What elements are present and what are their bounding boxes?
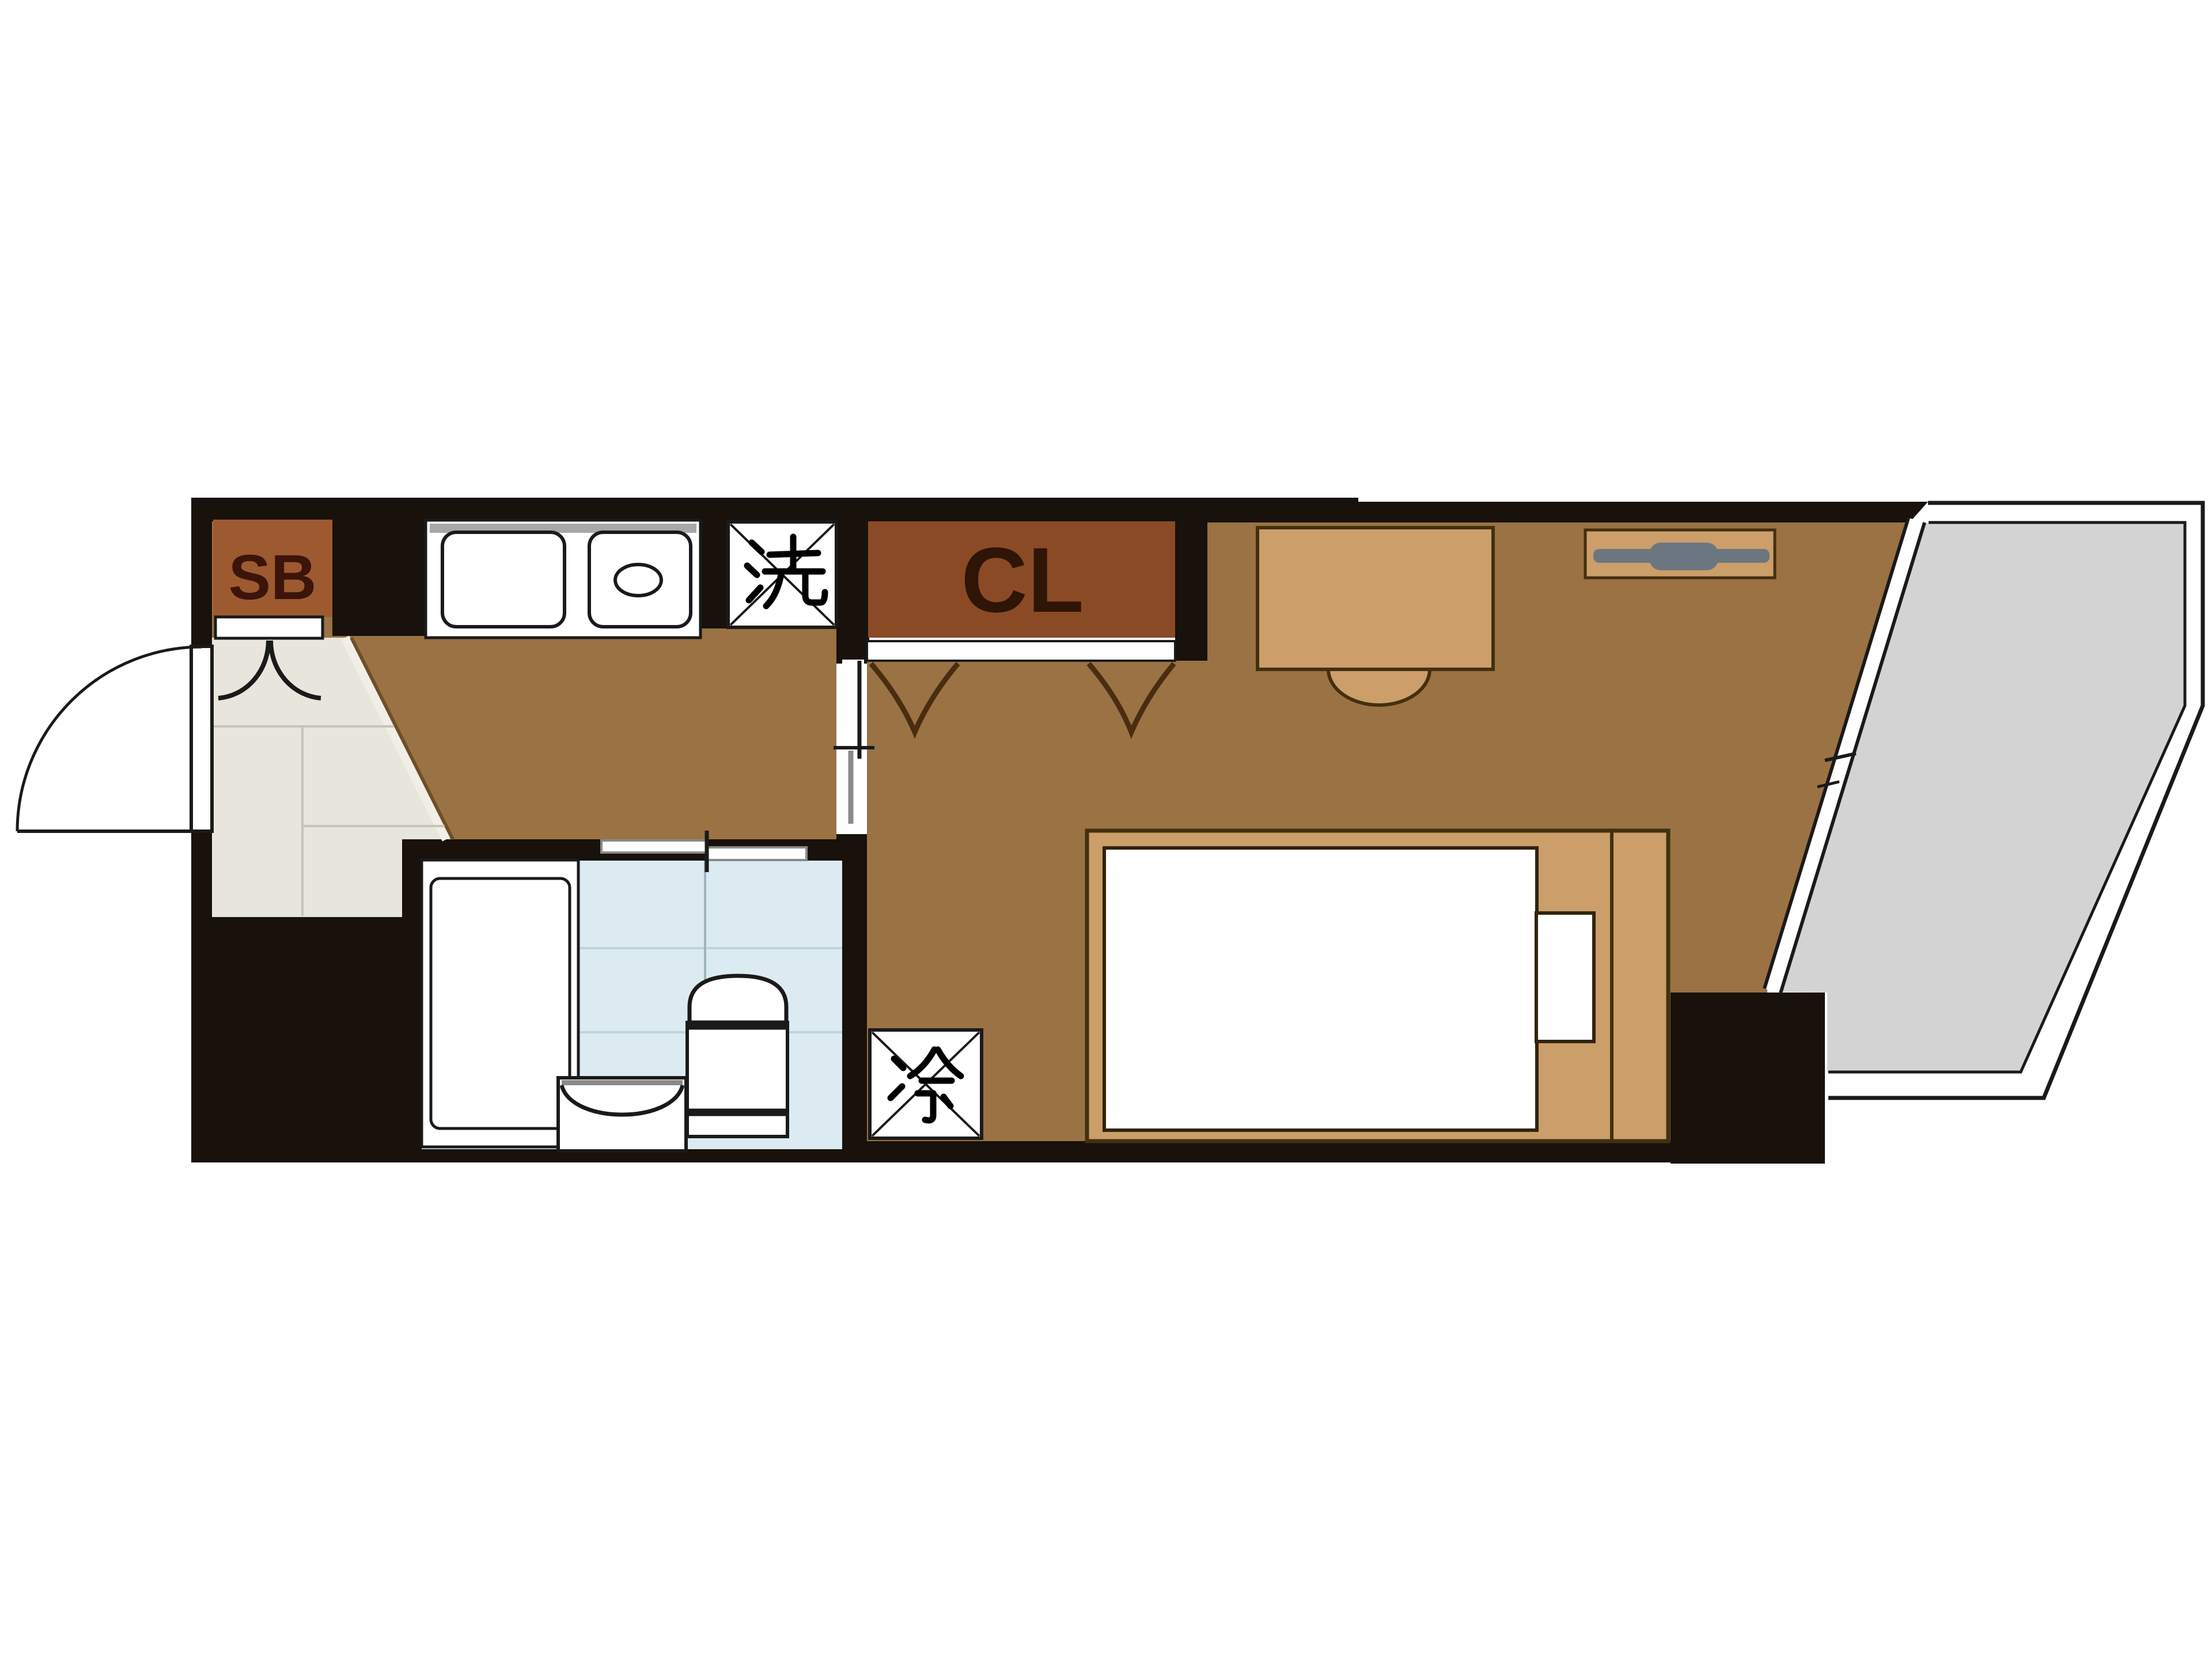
svg-text:CL: CL — [961, 528, 1084, 631]
svg-text:SB: SB — [229, 542, 317, 613]
